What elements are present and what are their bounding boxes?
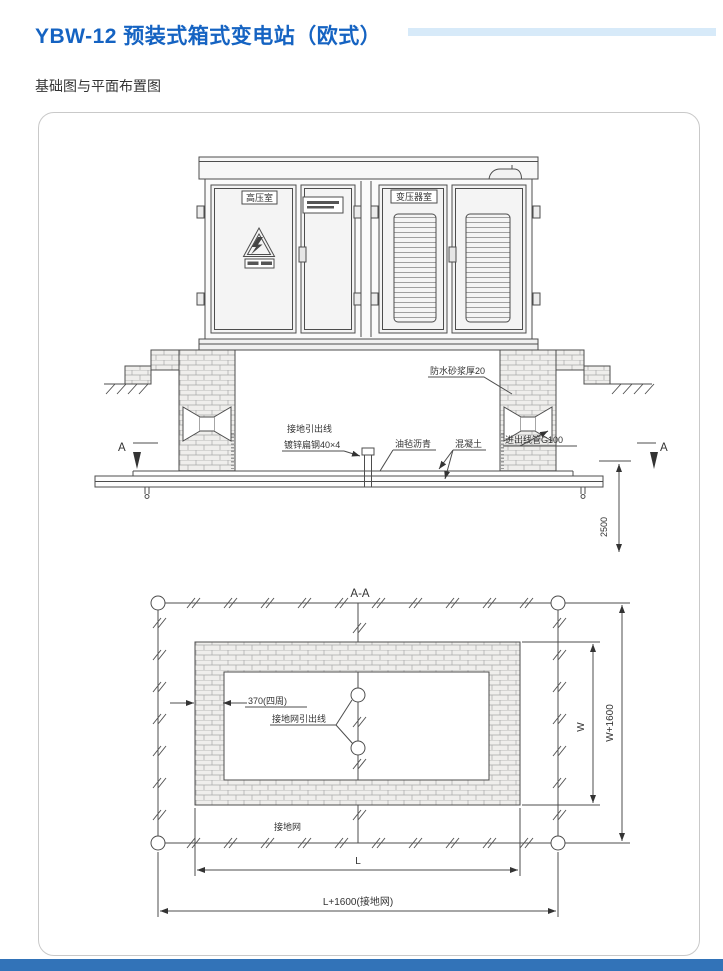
elevation-view: 高压室 变压器室 (95, 157, 668, 552)
nameplate (303, 197, 343, 213)
dim-2500: 2500 (599, 517, 609, 537)
footer-accent-bar (0, 959, 723, 971)
label-ground-grid: 接地网 (274, 821, 301, 832)
page: YBW-12 预装式箱式变电站（欧式） 基础图与平面布置图 (0, 0, 723, 971)
label-flat-steel: 镀锌扁钢40×4 (284, 439, 340, 450)
hv-room-label: 高压室 (246, 192, 273, 203)
label-conduit: 进出线管G100 (505, 434, 563, 445)
door-handle-left (299, 247, 306, 262)
label-felt-asphalt: 油毡沥青 (395, 438, 431, 449)
label-ground-lead: 接地引出线 (287, 423, 332, 434)
section-marker-a-right: A (660, 442, 668, 454)
label-waterproof-mortar: 防水砂浆厚20 (430, 365, 485, 376)
label-grid-lead: 接地网引出线 (272, 713, 326, 724)
foundation-slab (95, 471, 603, 487)
ground-anchors (145, 487, 585, 499)
section-marker-a-left: A (118, 442, 126, 454)
label-concrete: 混凝土 (455, 438, 482, 449)
louver-panel-right (466, 214, 510, 322)
roof (199, 157, 538, 179)
transformer-room-label: 变压器室 (396, 191, 432, 202)
dim-inner-length: L (355, 856, 361, 867)
louver-panel-left (394, 214, 436, 322)
foundation-drawing: 高压室 变压器室 (0, 0, 723, 971)
plan-view: A-A (151, 588, 630, 917)
dim-wall-thickness: 370(四周) (248, 696, 287, 706)
plan-title: A-A (350, 588, 370, 600)
dim-inner-width: W (576, 722, 587, 732)
door-handle-right (449, 247, 456, 262)
dim-outer-length: L+1600(接地网) (323, 895, 393, 908)
dim-outer-width: W+1600 (605, 704, 616, 742)
roof-vent (489, 169, 522, 179)
